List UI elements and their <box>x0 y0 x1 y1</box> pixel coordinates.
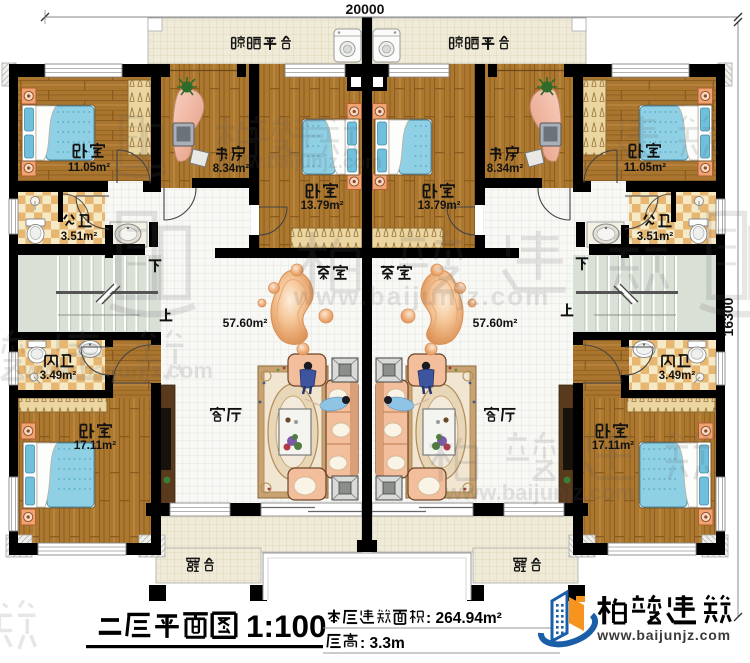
svg-text:3.49m²: 3.49m² <box>659 370 696 382</box>
svg-text:17.11m²: 17.11m² <box>592 440 634 452</box>
svg-text:3.49m²: 3.49m² <box>40 370 77 382</box>
svg-text:57.60m²: 57.60m² <box>223 316 268 330</box>
svg-text:www.baijunjz.com: www.baijunjz.com <box>293 281 550 311</box>
svg-text:: 3.3m: : 3.3m <box>360 635 405 652</box>
svg-text:17.11m²: 17.11m² <box>74 440 116 452</box>
svg-text:3.51m²: 3.51m² <box>61 231 98 243</box>
svg-text:11.05m²: 11.05m² <box>68 162 110 174</box>
svg-text:8.34m²: 8.34m² <box>213 163 250 175</box>
svg-text:www.baijunjz.com: www.baijunjz.com <box>596 627 731 643</box>
svg-text:11.05m²: 11.05m² <box>624 162 666 174</box>
svg-text:8.34m²: 8.34m² <box>487 163 524 175</box>
svg-text:: 264.94m²: : 264.94m² <box>426 610 502 627</box>
svg-text:www.baijunjz.com: www.baijunjz.com <box>444 480 635 505</box>
svg-text:13.79m²: 13.79m² <box>418 200 461 212</box>
svg-text:3.51m²: 3.51m² <box>637 231 674 243</box>
svg-text:1:100: 1:100 <box>246 608 327 644</box>
svg-text:20000: 20000 <box>346 1 385 17</box>
svg-text:16300: 16300 <box>720 297 736 336</box>
svg-text:57.60m²: 57.60m² <box>473 316 518 330</box>
svg-text:13.79m²: 13.79m² <box>301 200 344 212</box>
